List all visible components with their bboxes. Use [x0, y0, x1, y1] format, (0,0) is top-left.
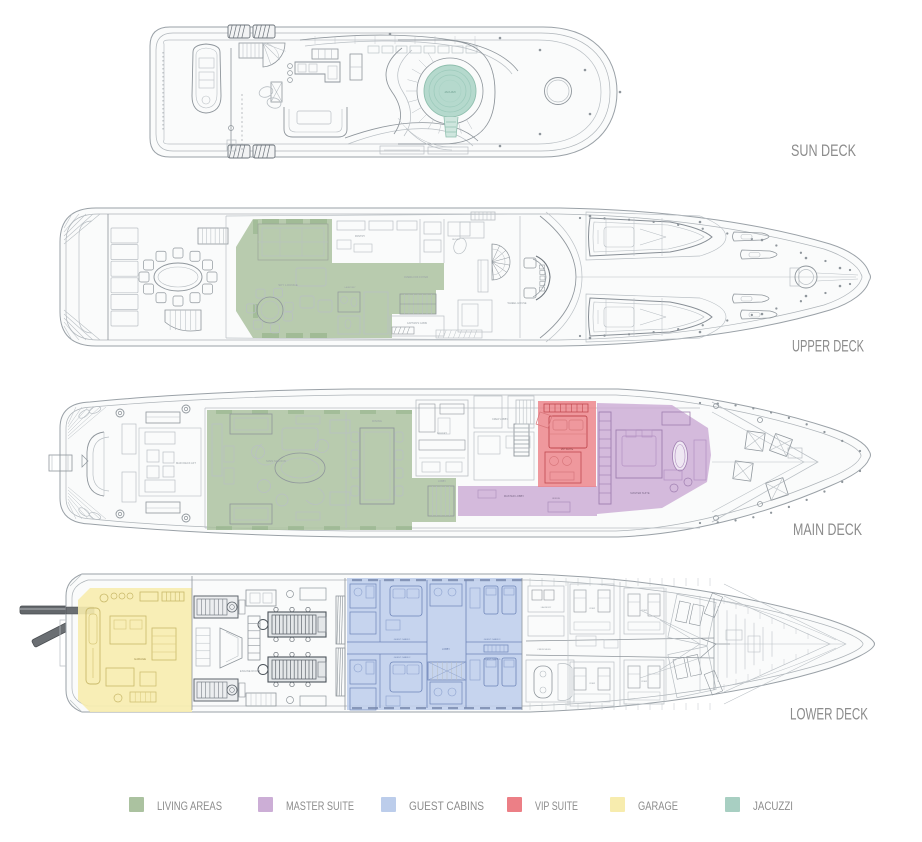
svg-text:MASTER LOBBY: MASTER LOBBY	[504, 494, 524, 498]
svg-text:MAIN SALOON: MAIN SALOON	[266, 459, 285, 463]
svg-text:JACUZZI: JACUZZI	[444, 90, 456, 94]
svg-text:DINING: DINING	[372, 419, 382, 423]
svg-text:CREW MESS: CREW MESS	[537, 649, 551, 651]
svg-text:CREW: CREW	[641, 681, 647, 683]
svg-text:MASTER SUITE: MASTER SUITE	[286, 799, 354, 813]
svg-text:GARAGE: GARAGE	[134, 657, 146, 661]
svg-text:BUNKS: BUNKS	[452, 239, 460, 241]
svg-text:OFFICE: OFFICE	[552, 498, 561, 500]
svg-text:GUEST CABIN 1: GUEST CABIN 1	[394, 638, 411, 641]
svg-text:UPPER DECK: UPPER DECK	[792, 338, 864, 356]
svg-text:VIP SUITE: VIP SUITE	[535, 799, 578, 813]
svg-text:MAIN DECK AFT: MAIN DECK AFT	[176, 461, 196, 465]
svg-text:GUEST CABINS: GUEST CABINS	[409, 799, 484, 813]
svg-text:GUEST CABIN 5: GUEST CABIN 5	[484, 658, 501, 661]
svg-text:LOBBY: LOBBY	[438, 480, 446, 483]
svg-text:GALLEY: GALLEY	[437, 431, 447, 435]
svg-text:LOBBY: LOBBY	[442, 648, 450, 651]
svg-text:GUEST CABIN 3: GUEST CABIN 3	[484, 638, 501, 641]
svg-text:JACUZZI: JACUZZI	[753, 799, 793, 813]
svg-text:MAIN DECK: MAIN DECK	[793, 521, 862, 539]
svg-text:CREW: CREW	[589, 683, 595, 685]
svg-text:CREW LOBBY: CREW LOBBY	[492, 418, 508, 421]
svg-text:VIP SUITE: VIP SUITE	[561, 447, 574, 451]
svg-text:LOWER DECK: LOWER DECK	[790, 706, 868, 724]
svg-text:LIVING AREAS: LIVING AREAS	[157, 799, 222, 813]
svg-text:CAPTAIN'S CABIN: CAPTAIN'S CABIN	[407, 322, 427, 325]
svg-text:LAUNDRY: LAUNDRY	[541, 606, 552, 609]
svg-text:SKY LOUNGE: SKY LOUNGE	[278, 283, 297, 287]
svg-text:SUN DECK: SUN DECK	[791, 142, 856, 160]
svg-text:CREW: CREW	[589, 608, 595, 610]
svg-text:GARAGE: GARAGE	[638, 799, 678, 813]
svg-text:GUEST CABIN 2: GUEST CABIN 2	[394, 656, 411, 659]
svg-text:LAVATORY: LAVATORY	[344, 286, 356, 289]
svg-text:OVERLOOK FOYER: OVERLOOK FOYER	[404, 275, 428, 279]
svg-text:MASTER SUITE: MASTER SUITE	[630, 491, 649, 495]
svg-text:WHEEL HOUSE: WHEEL HOUSE	[507, 301, 526, 305]
svg-text:PANTRY: PANTRY	[355, 234, 366, 238]
